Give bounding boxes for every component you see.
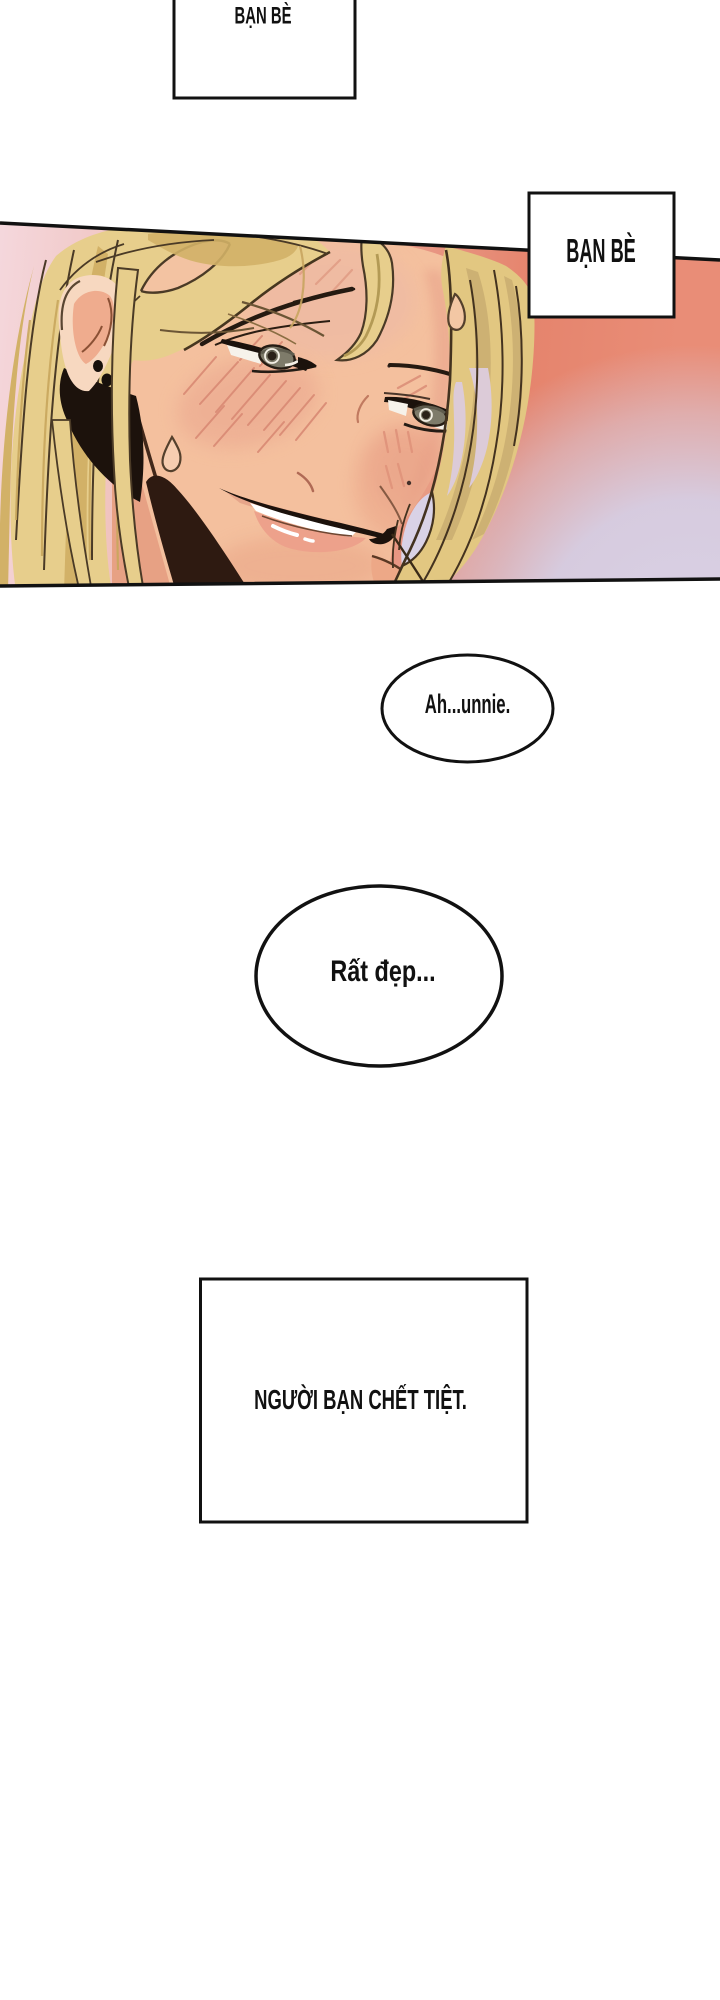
svg-text:Rất đẹp...: Rất đẹp...	[330, 954, 435, 987]
svg-text:BẠN BÈ: BẠN BÈ	[566, 232, 636, 269]
svg-text:NGƯỜI BẠN CHẾT TIỆT.: NGƯỜI BẠN CHẾT TIỆT.	[254, 1383, 467, 1416]
svg-text:Ah...unnie.: Ah...unnie.	[425, 689, 511, 719]
svg-text:BẠN BÈ: BẠN BÈ	[234, 2, 291, 30]
